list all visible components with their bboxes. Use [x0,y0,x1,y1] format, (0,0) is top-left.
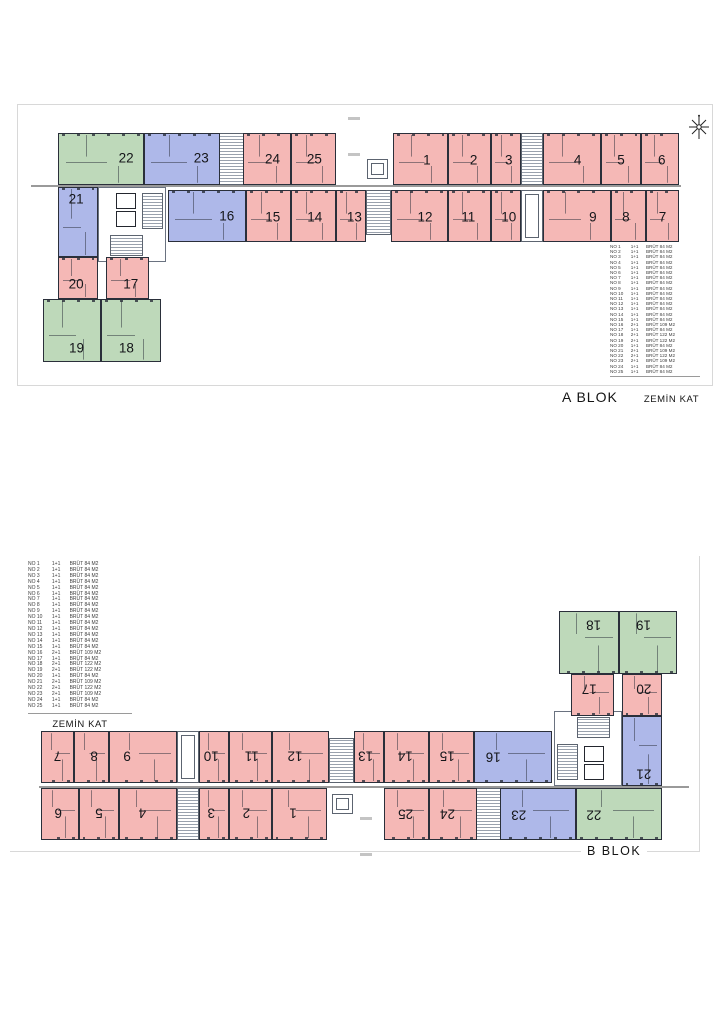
stair-feature [219,133,244,185]
apartment-unit: 13 [354,731,384,783]
apartment-unit: 18 [559,611,619,674]
stair-feature [557,744,578,780]
shaft-feature [584,764,604,780]
mark-feature [348,153,360,156]
unit-number: 2 [243,806,251,821]
unit-number: 10 [501,210,516,225]
unit-number: 16 [486,750,501,765]
legend-unit-area: BRÜT 84 M2 [646,369,700,374]
legend-unit-no: NO 25 [610,369,631,374]
apartment-unit: 16 [474,731,552,783]
unit-number: 23 [194,150,209,165]
unit-number: 17 [123,276,138,291]
apartment-unit: 14 [384,731,429,783]
unit-number: 20 [636,682,651,697]
unit-number: 14 [307,210,322,225]
a-blok-floor-label: ZEMİN KAT [644,394,699,405]
apartment-unit: 7 [41,731,74,783]
shaft-feature [116,193,136,209]
apartment-unit: 13 [336,190,366,242]
apartment-unit: 4 [119,788,177,840]
elev-feature [521,190,543,242]
apartment-unit: 25 [384,788,429,840]
unit-number: 20 [69,276,84,291]
shaft-feature [116,211,136,227]
legend-row: NO 25 1+1 BRÜT 84 M2 [610,369,700,374]
mark-feature [360,817,372,820]
unit-number: 1 [289,806,297,821]
unit-number: 19 [69,340,84,355]
apartment-unit: 2 [448,133,491,185]
shaft-feature [584,746,604,762]
unit-number: 3 [505,153,513,168]
unit-number: 22 [119,150,134,165]
a-blok-sheet: 22 23 24 25 1 [17,104,713,386]
unit-number: 21 [69,191,84,206]
apartment-unit: 5 [79,788,119,840]
apartment-unit: 7 [646,190,679,242]
unit-number: 5 [617,153,625,168]
apartment-unit: 2 [229,788,272,840]
stair-feature [329,738,354,783]
unit-number: 15 [440,749,455,764]
b-blok-sheet: NO 1 1+1 BRÜT 84 M2 NO 2 1+1 BRÜT 84 M2 … [10,556,700,852]
apartment-unit: 8 [74,731,109,783]
unit-number: 9 [123,749,131,764]
a-blok-floor-plan: 22 23 24 25 1 [18,105,708,395]
unit-number: 14 [398,749,413,764]
apartment-unit: 6 [641,133,679,185]
unit-number: 8 [90,749,98,764]
unit-number: 7 [659,210,667,225]
apartment-unit: 21 [622,716,662,786]
apartment-unit: 22 [58,133,144,185]
unit-number: 13 [358,749,373,764]
apartment-unit: 24 [243,133,291,185]
stair-feature [177,788,199,840]
unit-number: 21 [636,767,651,782]
apartment-unit: 16 [168,190,246,242]
unit-number: 22 [586,808,601,823]
apartment-unit: 24 [429,788,477,840]
apartment-unit: 14 [291,190,336,242]
unit-number: 6 [658,153,666,168]
unit-number: 15 [265,210,280,225]
apartment-unit: 10 [199,731,229,783]
apartment-unit: 6 [41,788,79,840]
stair-feature [110,235,143,256]
apartment-unit: 12 [272,731,329,783]
unit-number: 18 [119,340,134,355]
unit-number: 17 [582,682,597,697]
unit-number: 12 [417,210,432,225]
apartment-unit: 5 [601,133,641,185]
unit-number: 24 [440,807,455,822]
apartment-unit: 19 [619,611,677,674]
elev-feature [177,731,199,783]
apartment-unit: 17 [106,257,149,299]
unit-number: 9 [589,210,597,225]
unit-number: 8 [622,210,630,225]
unit-number: 24 [265,152,280,167]
stair-feature [476,788,501,840]
apartment-unit: 15 [429,731,474,783]
unit-number: 11 [245,749,259,764]
a-blok-title: A BLOK [562,389,618,405]
apartment-unit: 15 [246,190,291,242]
unit-number: 4 [139,806,147,821]
unit-number: 1 [423,153,431,168]
mark-feature [348,117,360,120]
unit-number: 5 [95,806,103,821]
unit-number: 18 [586,618,601,633]
elev-feature [332,794,353,814]
unit-number: 19 [636,618,651,633]
apartment-unit: 23 [500,788,576,840]
b-blok-floor-plan: 22 23 24 25 1 [12,578,702,868]
unit-number: 13 [347,210,362,225]
b-blok-title: B BLOK [581,844,647,858]
stair-feature [521,133,543,185]
apartment-unit: 25 [291,133,336,185]
apartment-unit: 18 [101,299,161,362]
legend-unit-type: 1+1 [631,369,646,374]
apartment-unit: 17 [571,674,614,716]
mark-feature [360,853,372,856]
elev-feature [367,159,388,179]
unit-number: 2 [470,153,478,168]
apartment-unit: 1 [393,133,448,185]
unit-number: 11 [461,210,475,225]
a-blok-caption: A BLOK ZEMİN KAT [562,389,699,405]
unit-number: 25 [307,152,322,167]
apartment-unit: 21 [58,187,98,257]
apartment-unit: 10 [491,190,521,242]
apartment-unit: 12 [391,190,448,242]
apartment-unit: 23 [144,133,220,185]
apartment-unit: 20 [622,674,662,716]
apartment-unit: 9 [109,731,177,783]
stair-feature [366,190,391,235]
floorplan-sheet-page: 22 23 24 25 1 [0,0,724,1024]
apartment-unit: 9 [543,190,611,242]
apartment-unit: 20 [58,257,98,299]
apartment-unit: 4 [543,133,601,185]
unit-number: 25 [398,807,413,822]
apartment-unit: 3 [199,788,229,840]
apartment-unit: 11 [448,190,491,242]
unit-number: 4 [574,153,582,168]
north-compass-icon [686,114,712,140]
unit-number: 10 [204,749,219,764]
stair-feature [577,717,610,738]
apartment-unit: 1 [272,788,327,840]
apartment-unit: 3 [491,133,521,185]
a-blok-unit-legend: NO 1 1+1 BRÜT 84 M2 NO 2 1+1 BRÜT 84 M2 … [610,244,700,377]
unit-number: 12 [287,749,302,764]
unit-number: 3 [207,806,215,821]
apartment-unit: 11 [229,731,272,783]
unit-number: 6 [54,806,62,821]
stair-feature [142,193,163,229]
apartment-unit: 22 [576,788,662,840]
unit-number: 16 [219,209,234,224]
unit-number: 23 [511,808,526,823]
apartment-unit: 19 [43,299,101,362]
unit-number: 7 [54,749,62,764]
apartment-unit: 8 [611,190,646,242]
